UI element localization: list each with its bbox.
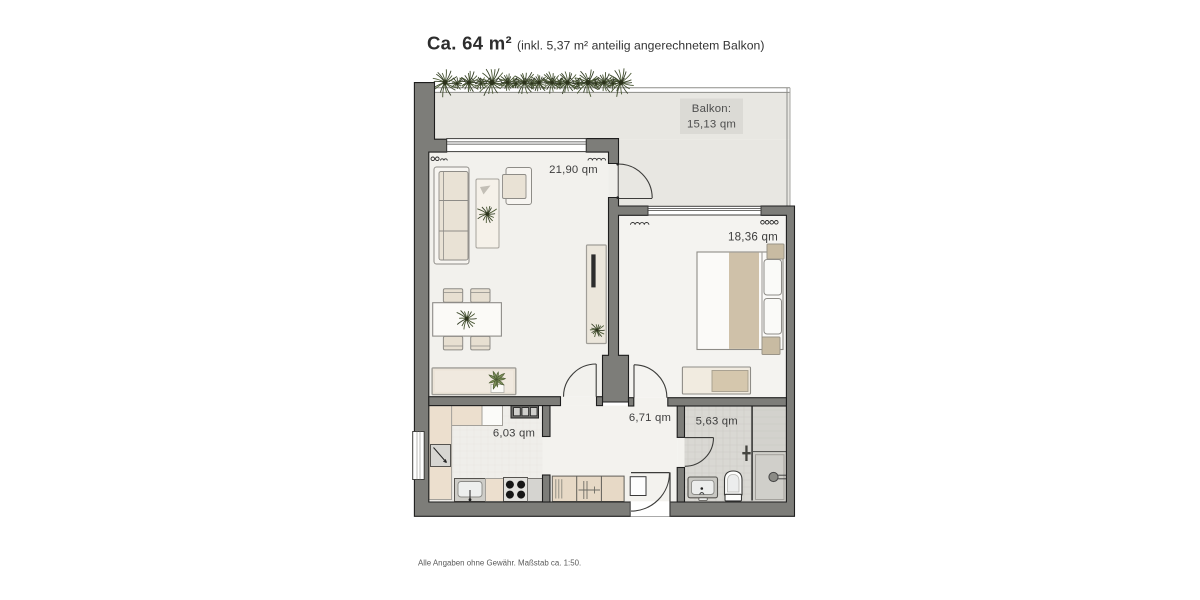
svg-text:Balkon:: Balkon: [692,103,731,115]
svg-text:18,36 qm: 18,36 qm [728,231,778,244]
svg-text:(inkl. 5,37 m² anteilig angere: (inkl. 5,37 m² anteilig angerechnetem Ba… [517,39,764,53]
svg-text:21,90 qm: 21,90 qm [549,164,598,176]
svg-text:15,13 qm: 15,13 qm [687,119,736,131]
svg-text:Ca. 64 m²: Ca. 64 m² [427,33,512,54]
svg-text:6,71 qm: 6,71 qm [629,412,671,424]
svg-text:5,63 qm: 5,63 qm [696,416,738,428]
svg-text:Alle Angaben ohne Gewähr. Maßs: Alle Angaben ohne Gewähr. Maßstab ca. 1:… [418,559,581,568]
svg-text:6,03 qm: 6,03 qm [493,428,535,440]
